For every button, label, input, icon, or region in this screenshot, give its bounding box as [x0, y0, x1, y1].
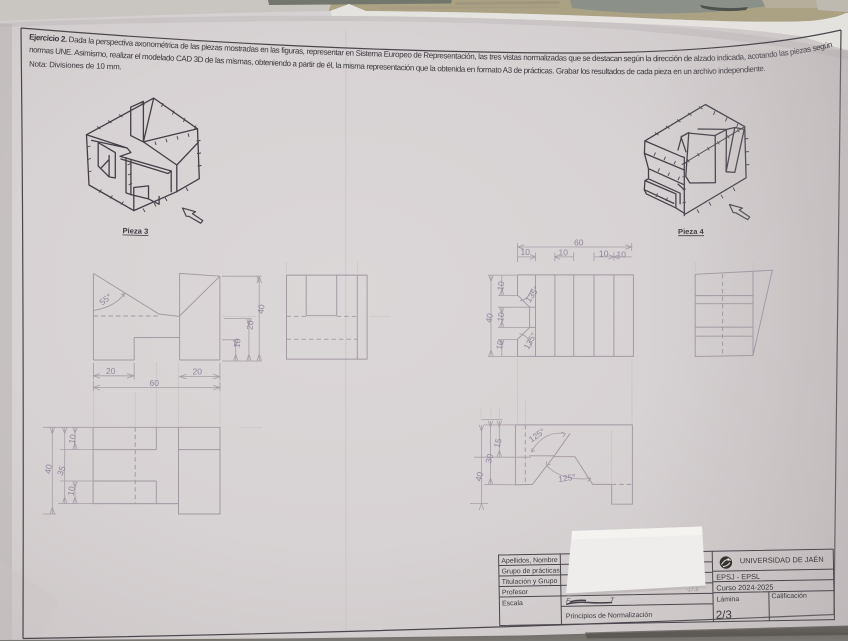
svg-text:20: 20	[193, 367, 203, 377]
svg-text:10: 10	[494, 339, 506, 350]
svg-text:Titulación y Grupo: Titulación y Grupo	[502, 578, 558, 586]
svg-text:10: 10	[231, 338, 242, 349]
svg-text:Apellidos, Nombre: Apellidos, Nombre	[501, 557, 558, 565]
svg-text:20: 20	[106, 366, 116, 376]
svg-text:Grupo de prácticas: Grupo de prácticas	[501, 567, 560, 575]
svg-text:40: 40	[42, 463, 54, 474]
svg-text:60: 60	[150, 378, 160, 388]
svg-text:EPSJ - EPSL: EPSJ - EPSL	[716, 572, 760, 582]
svg-text:10: 10	[559, 248, 569, 258]
svg-text:60: 60	[574, 238, 584, 248]
svg-text:Curso 2024-2025: Curso 2024-2025	[716, 583, 773, 593]
svg-text:10: 10	[65, 485, 77, 496]
svg-text:10: 10	[495, 311, 507, 322]
svg-text:40: 40	[255, 304, 266, 315]
svg-text:40: 40	[483, 312, 495, 323]
svg-text:UNIVERSIDAD DE JAÉN: UNIVERSIDAD DE JAÉN	[740, 555, 824, 565]
svg-text:2/3: 2/3	[716, 609, 732, 621]
svg-text:Lámina: Lámina	[717, 596, 740, 603]
svg-text:10: 10	[66, 433, 78, 444]
svg-text:Pieza 3: Pieza 3	[122, 226, 148, 236]
svg-text:10: 10	[617, 250, 627, 260]
svg-text:10: 10	[495, 280, 507, 291]
svg-text:20: 20	[244, 320, 255, 331]
svg-text:Profesor: Profesor	[502, 589, 529, 596]
svg-text:F.: F.	[566, 598, 571, 605]
svg-text:10: 10	[521, 247, 531, 257]
svg-text:Calificación: Calificación	[771, 593, 807, 601]
svg-text:10: 10	[599, 249, 609, 259]
svg-text:Escala: Escala	[502, 600, 523, 607]
